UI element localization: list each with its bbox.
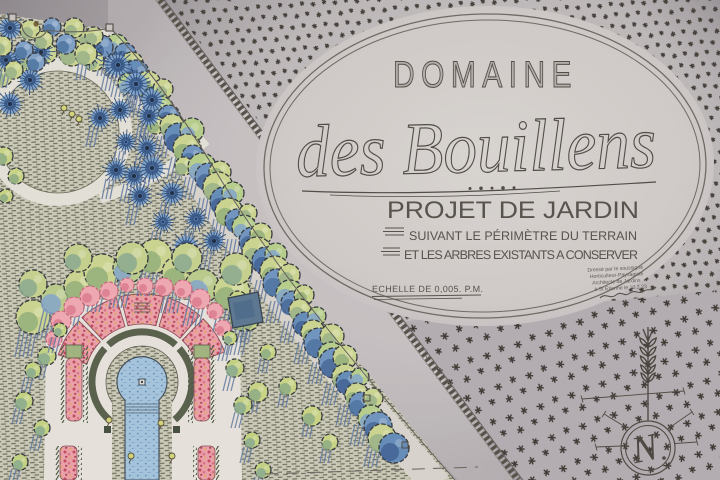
svg-text:des Bouillens: des Bouillens — [295, 102, 657, 193]
svg-text:SUIVANT LE PÉRIMÈTRE DU TERRAI: SUIVANT LE PÉRIMÈTRE DU TERRAIN — [409, 229, 637, 243]
svg-text:DOMAINE: DOMAINE — [393, 54, 578, 95]
svg-text:PROJET DE JARDIN: PROJET DE JARDIN — [387, 197, 639, 224]
svg-text:ET LES ARBRES EXISTANTS A CONS: ET LES ARBRES EXISTANTS A CONSERVER — [404, 248, 638, 262]
svg-text:ECHELLE DE 0,005. P.M.: ECHELLE DE 0,005. P.M. — [372, 284, 483, 294]
